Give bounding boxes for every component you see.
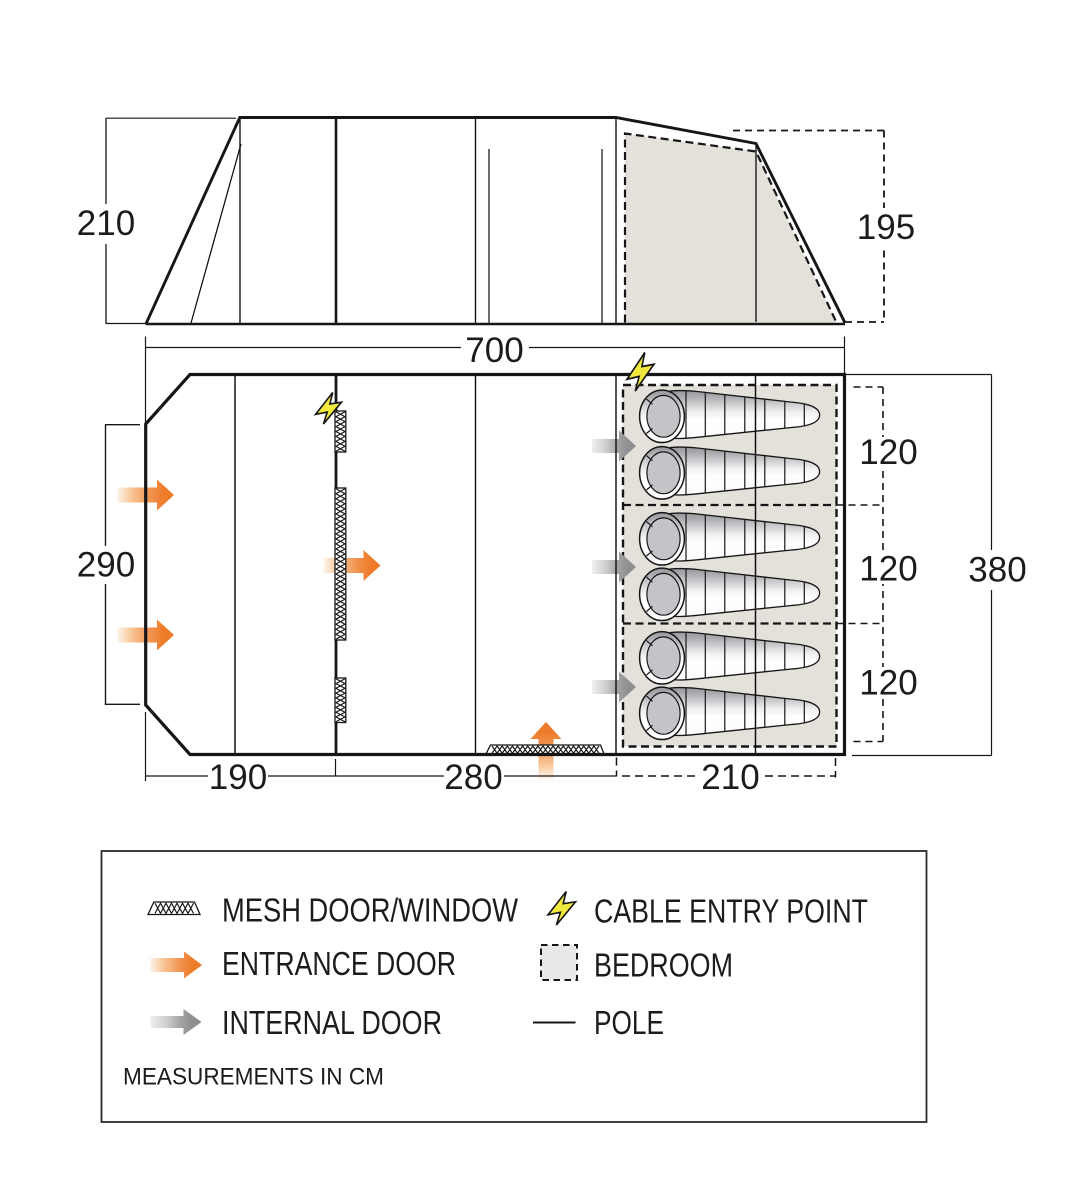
svg-text:210: 210 xyxy=(701,758,759,797)
svg-text:120: 120 xyxy=(859,433,917,472)
svg-text:INTERNAL DOOR: INTERNAL DOOR xyxy=(222,1004,442,1041)
svg-text:190: 190 xyxy=(209,758,267,797)
svg-text:POLE: POLE xyxy=(594,1004,664,1041)
svg-text:380: 380 xyxy=(968,551,1026,590)
svg-text:195: 195 xyxy=(857,208,915,247)
svg-text:700: 700 xyxy=(465,331,523,370)
svg-text:CABLE ENTRY POINT: CABLE ENTRY POINT xyxy=(594,893,868,930)
svg-text:120: 120 xyxy=(859,664,917,703)
svg-text:120: 120 xyxy=(859,550,917,589)
svg-text:280: 280 xyxy=(444,758,502,797)
svg-text:ENTRANCE DOOR: ENTRANCE DOOR xyxy=(222,945,456,982)
svg-text:MESH DOOR/WINDOW: MESH DOOR/WINDOW xyxy=(222,892,519,929)
svg-text:BEDROOM: BEDROOM xyxy=(594,947,733,984)
svg-text:290: 290 xyxy=(77,546,135,585)
svg-text:MEASUREMENTS IN CM: MEASUREMENTS IN CM xyxy=(123,1064,384,1091)
svg-text:210: 210 xyxy=(77,204,135,243)
